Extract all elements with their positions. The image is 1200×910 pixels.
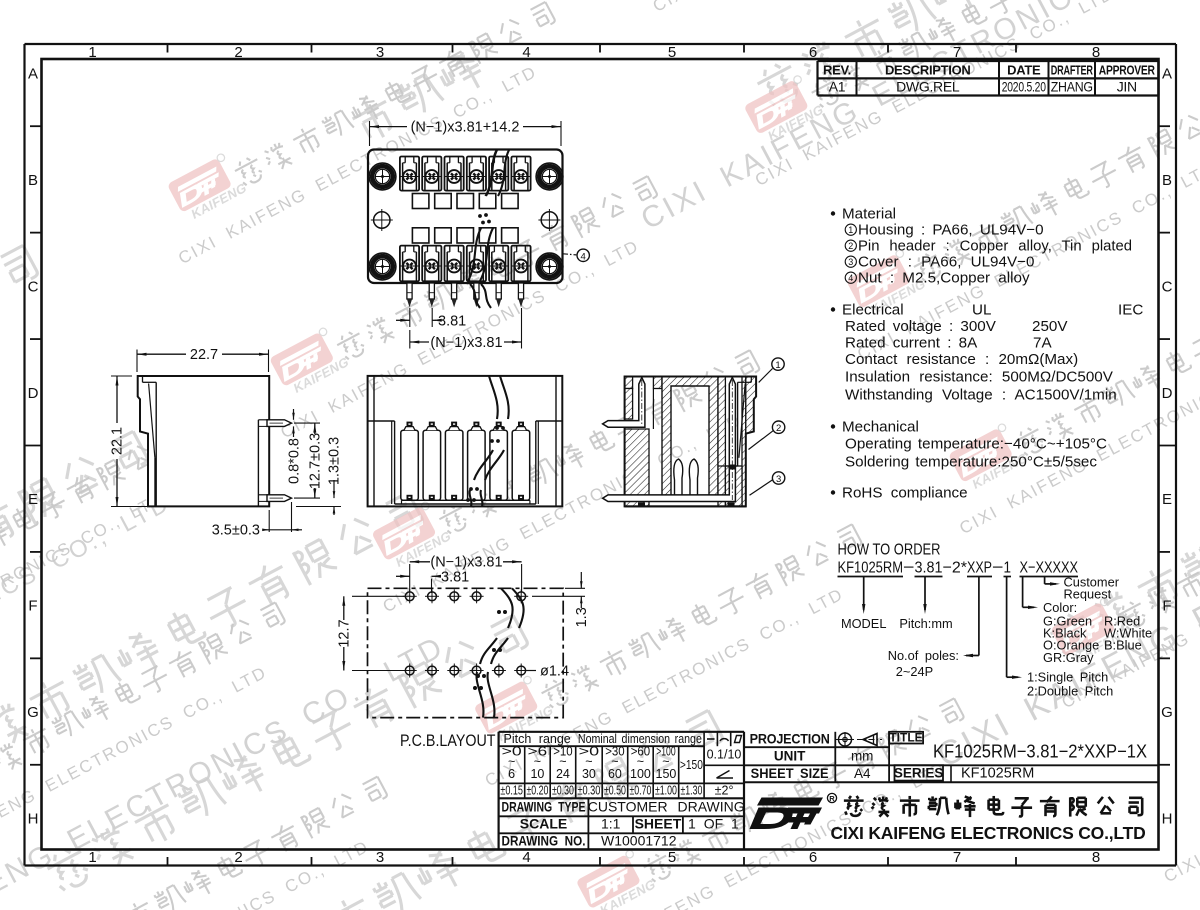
svg-text:SERIES: SERIES bbox=[894, 766, 944, 781]
svg-text:HOW TO ORDER: HOW TO ORDER bbox=[838, 542, 941, 559]
svg-text:3: 3 bbox=[376, 849, 384, 866]
svg-text:G: G bbox=[27, 704, 39, 721]
svg-text:24: 24 bbox=[556, 767, 570, 781]
svg-text:A: A bbox=[1162, 66, 1172, 83]
svg-text:E: E bbox=[1162, 491, 1172, 508]
svg-text:±0.15: ±0.15 bbox=[500, 784, 523, 798]
svg-text:(N−1)x3.81: (N−1)x3.81 bbox=[430, 555, 502, 571]
svg-text:5: 5 bbox=[668, 44, 676, 61]
svg-text:30: 30 bbox=[582, 767, 596, 781]
svg-text:ZHANG: ZHANG bbox=[1051, 79, 1093, 95]
svg-text:Nut : M2.5,Copper alloy: Nut : M2.5,Copper alloy bbox=[858, 270, 1030, 287]
svg-text:mm: mm bbox=[851, 749, 874, 764]
svg-text:3.81: 3.81 bbox=[915, 560, 943, 577]
svg-text:Rated current : 8A: Rated current : 8A bbox=[845, 335, 978, 352]
svg-text:SHEET: SHEET bbox=[635, 816, 682, 832]
svg-text:1: 1 bbox=[1004, 560, 1012, 577]
svg-text:1.3±0.3: 1.3±0.3 bbox=[327, 437, 343, 485]
svg-text:Insulation resistance: 500MΩ/D: Insulation resistance: 500MΩ/DC500V bbox=[845, 369, 1114, 386]
svg-text:Housing : PA66, UL94V−0: Housing : PA66, UL94V−0 bbox=[858, 222, 1044, 239]
svg-text:Withstanding Voltage : AC1500V: Withstanding Voltage : AC1500V/1min bbox=[845, 387, 1117, 404]
svg-text:±0.50: ±0.50 bbox=[604, 784, 626, 798]
svg-text:2:Double Pitch: 2:Double Pitch bbox=[1027, 684, 1113, 699]
svg-text:DATE: DATE bbox=[1007, 63, 1041, 78]
svg-text:250V: 250V bbox=[1032, 318, 1068, 335]
svg-text:C: C bbox=[1162, 278, 1173, 295]
svg-text:DRAWING TYPE: DRAWING TYPE bbox=[502, 799, 586, 815]
svg-text:C: C bbox=[28, 278, 39, 295]
svg-text:CUSTOMER DRAWING: CUSTOMER DRAWING bbox=[588, 799, 745, 815]
svg-text:7: 7 bbox=[953, 849, 961, 866]
svg-text:±1.30: ±1.30 bbox=[680, 784, 702, 798]
svg-text:1.3: 1.3 bbox=[574, 607, 590, 627]
svg-text:R: R bbox=[829, 794, 835, 803]
svg-text:XXP: XXP bbox=[967, 560, 992, 577]
svg-text:DRAWING NO.: DRAWING NO. bbox=[502, 833, 586, 849]
svg-text:±0.30: ±0.30 bbox=[577, 784, 600, 798]
svg-text:3: 3 bbox=[376, 44, 384, 61]
svg-text:5: 5 bbox=[668, 849, 676, 866]
svg-text:Cover : PA66, UL94V−0: Cover : PA66, UL94V−0 bbox=[858, 254, 1034, 271]
svg-text:8: 8 bbox=[1092, 849, 1100, 866]
svg-text:22.7: 22.7 bbox=[190, 347, 218, 363]
svg-text:1:Single Pitch: 1:Single Pitch bbox=[1027, 670, 1108, 685]
svg-text:100: 100 bbox=[630, 767, 651, 781]
svg-text:E: E bbox=[28, 491, 38, 508]
svg-text:1: 1 bbox=[848, 225, 853, 235]
svg-text:0.8*0.8: 0.8*0.8 bbox=[287, 438, 303, 484]
svg-text:1: 1 bbox=[775, 360, 780, 371]
svg-text:Pin header : Copper alloy, Tin: Pin header : Copper alloy, Tin plated bbox=[858, 238, 1132, 255]
svg-text:KF1025RM: KF1025RM bbox=[838, 560, 904, 577]
svg-text:D: D bbox=[28, 385, 39, 402]
svg-text:Material: Material bbox=[842, 206, 896, 223]
svg-text:±2°: ±2° bbox=[715, 784, 734, 798]
svg-text:A1: A1 bbox=[829, 79, 846, 95]
svg-text:RoHS compliance: RoHS compliance bbox=[842, 485, 968, 502]
svg-text:G: G bbox=[1161, 704, 1173, 721]
svg-text:3.5±0.3: 3.5±0.3 bbox=[212, 522, 260, 538]
svg-text:H: H bbox=[1162, 811, 1173, 828]
svg-text:Operating temperature:−40°C~+1: Operating temperature:−40°C~+105°C bbox=[845, 436, 1107, 453]
svg-text:2~24P: 2~24P bbox=[896, 664, 933, 679]
svg-text:DWG.REL: DWG.REL bbox=[896, 79, 960, 95]
svg-text:UL: UL bbox=[972, 302, 991, 319]
svg-text:KF1025RM: KF1025RM bbox=[961, 766, 1034, 782]
svg-text:6: 6 bbox=[809, 849, 817, 866]
svg-text:REV.: REV. bbox=[823, 63, 851, 78]
svg-text:DESCRIPTION: DESCRIPTION bbox=[885, 63, 971, 78]
svg-text:Electrical: Electrical bbox=[842, 302, 904, 319]
svg-text:2: 2 bbox=[776, 423, 781, 434]
svg-text:10: 10 bbox=[530, 767, 544, 781]
svg-text:7A: 7A bbox=[1033, 335, 1052, 352]
svg-text:F: F bbox=[28, 598, 37, 615]
svg-text:12.7±0.3: 12.7±0.3 bbox=[307, 433, 323, 489]
svg-text:B: B bbox=[1162, 172, 1172, 189]
svg-text:3.81: 3.81 bbox=[441, 569, 469, 585]
svg-text:Pitch:mm: Pitch:mm bbox=[899, 616, 952, 631]
svg-text:12.7: 12.7 bbox=[336, 619, 352, 647]
svg-text:CIXI KAIFENG ELECTRONICS CO.,L: CIXI KAIFENG ELECTRONICS CO.,LTD bbox=[830, 823, 1145, 843]
svg-text:3: 3 bbox=[776, 474, 781, 485]
svg-text:1:1: 1:1 bbox=[601, 816, 621, 832]
svg-text:D: D bbox=[1162, 385, 1173, 402]
svg-text:TITLE: TITLE bbox=[889, 730, 922, 744]
svg-text:Request: Request bbox=[1064, 587, 1112, 602]
svg-text:IEC: IEC bbox=[1118, 302, 1143, 319]
svg-text:B: B bbox=[28, 172, 38, 189]
svg-text:>150: >150 bbox=[680, 758, 703, 772]
svg-text:UNIT: UNIT bbox=[774, 749, 806, 764]
svg-text:(N−1)x3.81+14.2: (N−1)x3.81+14.2 bbox=[411, 120, 520, 136]
svg-text:No.of poles:: No.of poles: bbox=[888, 648, 959, 663]
svg-text:Contact resistance : 20mΩ(Max): Contact resistance : 20mΩ(Max) bbox=[845, 351, 1078, 368]
svg-text:150: 150 bbox=[656, 767, 677, 781]
svg-text:±0.20: ±0.20 bbox=[526, 784, 548, 798]
svg-text:6: 6 bbox=[508, 767, 515, 781]
svg-text:PROJECTION: PROJECTION bbox=[750, 732, 830, 747]
svg-text:H: H bbox=[28, 811, 39, 828]
svg-text:±0.70: ±0.70 bbox=[629, 784, 651, 798]
svg-text:22.1: 22.1 bbox=[110, 427, 126, 455]
svg-text:B:Blue: B:Blue bbox=[1104, 638, 1142, 653]
svg-text:±0.30: ±0.30 bbox=[552, 784, 574, 798]
svg-text:−: − bbox=[903, 560, 915, 577]
svg-text:SHEET SIZE: SHEET SIZE bbox=[751, 766, 829, 781]
svg-text:2: 2 bbox=[234, 44, 242, 61]
svg-text:P.C.B.LAYOUT: P.C.B.LAYOUT bbox=[400, 732, 496, 750]
svg-text:Rated voltage : 300V: Rated voltage : 300V bbox=[845, 318, 997, 335]
svg-text:Soldering temperature:250°C±5/: Soldering temperature:250°C±5/5sec bbox=[845, 454, 1097, 471]
svg-text:60: 60 bbox=[608, 767, 622, 781]
svg-text:±1.00: ±1.00 bbox=[655, 784, 677, 798]
svg-text:GR:Gray: GR:Gray bbox=[1043, 650, 1094, 665]
svg-text:8: 8 bbox=[1092, 44, 1100, 61]
svg-text:4: 4 bbox=[581, 251, 586, 262]
svg-text:4: 4 bbox=[522, 849, 530, 866]
svg-text:7: 7 bbox=[953, 44, 961, 61]
svg-text:1 OF 1: 1 OF 1 bbox=[688, 816, 739, 832]
svg-text:3.81: 3.81 bbox=[438, 314, 466, 330]
svg-text:−2*: −2* bbox=[943, 560, 968, 577]
svg-text:1: 1 bbox=[88, 44, 96, 61]
svg-text:MODEL: MODEL bbox=[841, 616, 887, 631]
svg-text:DRAFTER: DRAFTER bbox=[1051, 63, 1094, 78]
svg-text:ø1.4: ø1.4 bbox=[540, 663, 569, 679]
svg-text:JIN: JIN bbox=[1117, 79, 1137, 95]
svg-text:A4: A4 bbox=[854, 766, 871, 781]
svg-text:2: 2 bbox=[234, 849, 242, 866]
svg-text:4: 4 bbox=[522, 44, 530, 61]
svg-text:Mechanical: Mechanical bbox=[842, 419, 919, 436]
svg-text:−: − bbox=[992, 560, 1004, 577]
svg-text:4: 4 bbox=[848, 273, 853, 283]
svg-text:SCALE: SCALE bbox=[520, 816, 567, 832]
svg-text:3: 3 bbox=[848, 257, 853, 267]
svg-text:F: F bbox=[1162, 598, 1171, 615]
svg-text:2: 2 bbox=[848, 241, 853, 251]
svg-text:0.1/10: 0.1/10 bbox=[707, 748, 742, 762]
svg-text:2020.5.20: 2020.5.20 bbox=[1002, 79, 1046, 95]
svg-text:W10001712: W10001712 bbox=[601, 833, 677, 849]
svg-text:6: 6 bbox=[809, 44, 817, 61]
svg-text:(N−1)x3.81: (N−1)x3.81 bbox=[430, 335, 502, 351]
svg-text:A: A bbox=[28, 66, 38, 83]
svg-text:1: 1 bbox=[88, 849, 96, 866]
svg-text:APPROVER: APPROVER bbox=[1099, 63, 1156, 78]
svg-text:KF1025RM−3.81−2*XXP−1X: KF1025RM−3.81−2*XXP−1X bbox=[933, 741, 1147, 762]
